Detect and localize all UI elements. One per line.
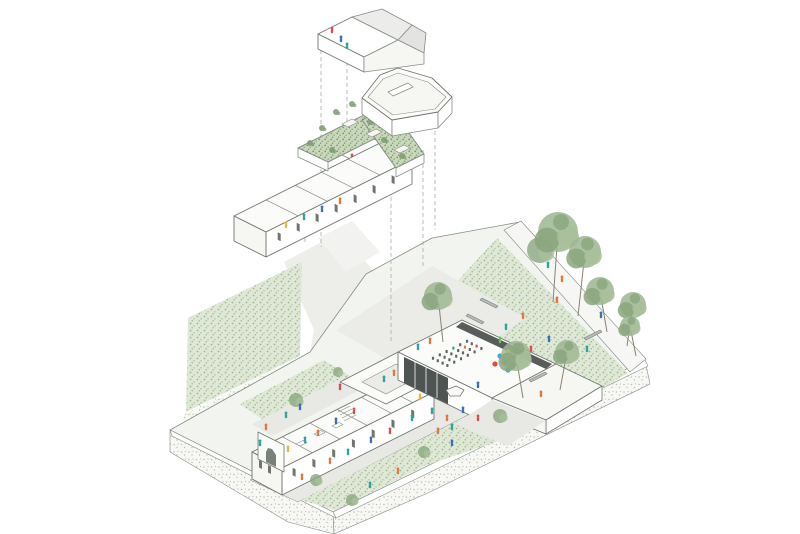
- figure: [561, 276, 564, 283]
- figure: [393, 370, 396, 377]
- figure: [339, 384, 342, 391]
- figure: [335, 418, 338, 425]
- roof-planting: [333, 109, 340, 115]
- figure: [339, 198, 342, 205]
- figure: [321, 206, 324, 213]
- figure: [431, 408, 434, 415]
- figure: [446, 415, 449, 422]
- figure: [419, 394, 422, 401]
- facade-window: [316, 213, 319, 222]
- figure: [347, 449, 350, 456]
- facade-window: [335, 204, 338, 213]
- facade-window: [297, 223, 300, 232]
- facade-window: [354, 194, 357, 203]
- exploded-axonometric-illustration: [0, 0, 800, 534]
- facade-window: [392, 175, 395, 184]
- figure: [287, 446, 290, 453]
- figure: [397, 468, 400, 475]
- figure: [548, 336, 551, 343]
- figure: [299, 404, 302, 411]
- facade-window: [259, 460, 262, 469]
- figure: [411, 415, 414, 422]
- figure: [285, 222, 288, 229]
- figure: [259, 440, 262, 447]
- figure: [370, 437, 373, 444]
- facade-window: [372, 429, 375, 438]
- figure: [265, 424, 268, 431]
- figure: [331, 27, 334, 34]
- facade-window: [373, 185, 376, 194]
- figure: [437, 428, 440, 435]
- figure: [369, 482, 372, 489]
- facade-window: [392, 419, 395, 428]
- figure: [383, 376, 386, 383]
- roof-planting: [319, 125, 326, 131]
- figure: [301, 474, 304, 481]
- axonometric-diagram-canvas: [0, 0, 800, 534]
- figure: [429, 338, 432, 345]
- figure: [451, 440, 454, 447]
- figure: [477, 415, 480, 422]
- roof-planting: [349, 101, 356, 107]
- figure: [329, 458, 332, 465]
- play-dot: [492, 361, 497, 366]
- figure: [285, 412, 288, 419]
- facade-window: [312, 459, 315, 468]
- facade-window: [352, 439, 355, 448]
- figure: [522, 313, 525, 320]
- figure: [505, 324, 508, 331]
- facade-window: [278, 232, 281, 241]
- facade-window: [332, 449, 335, 458]
- figure: [540, 391, 543, 398]
- figure: [346, 43, 349, 50]
- figure: [586, 346, 589, 353]
- figure: [477, 382, 480, 389]
- figure: [462, 407, 465, 414]
- figure: [556, 297, 559, 304]
- figure: [389, 428, 392, 435]
- figure: [340, 36, 343, 43]
- facade-window: [268, 465, 271, 474]
- figure: [353, 408, 356, 415]
- figure: [499, 337, 502, 344]
- figure: [317, 430, 320, 437]
- figure: [451, 424, 454, 431]
- facade-window: [293, 468, 296, 477]
- figure: [303, 214, 306, 221]
- figure: [304, 437, 307, 444]
- figure: [547, 262, 550, 269]
- figure: [417, 344, 420, 351]
- figure: [600, 312, 603, 319]
